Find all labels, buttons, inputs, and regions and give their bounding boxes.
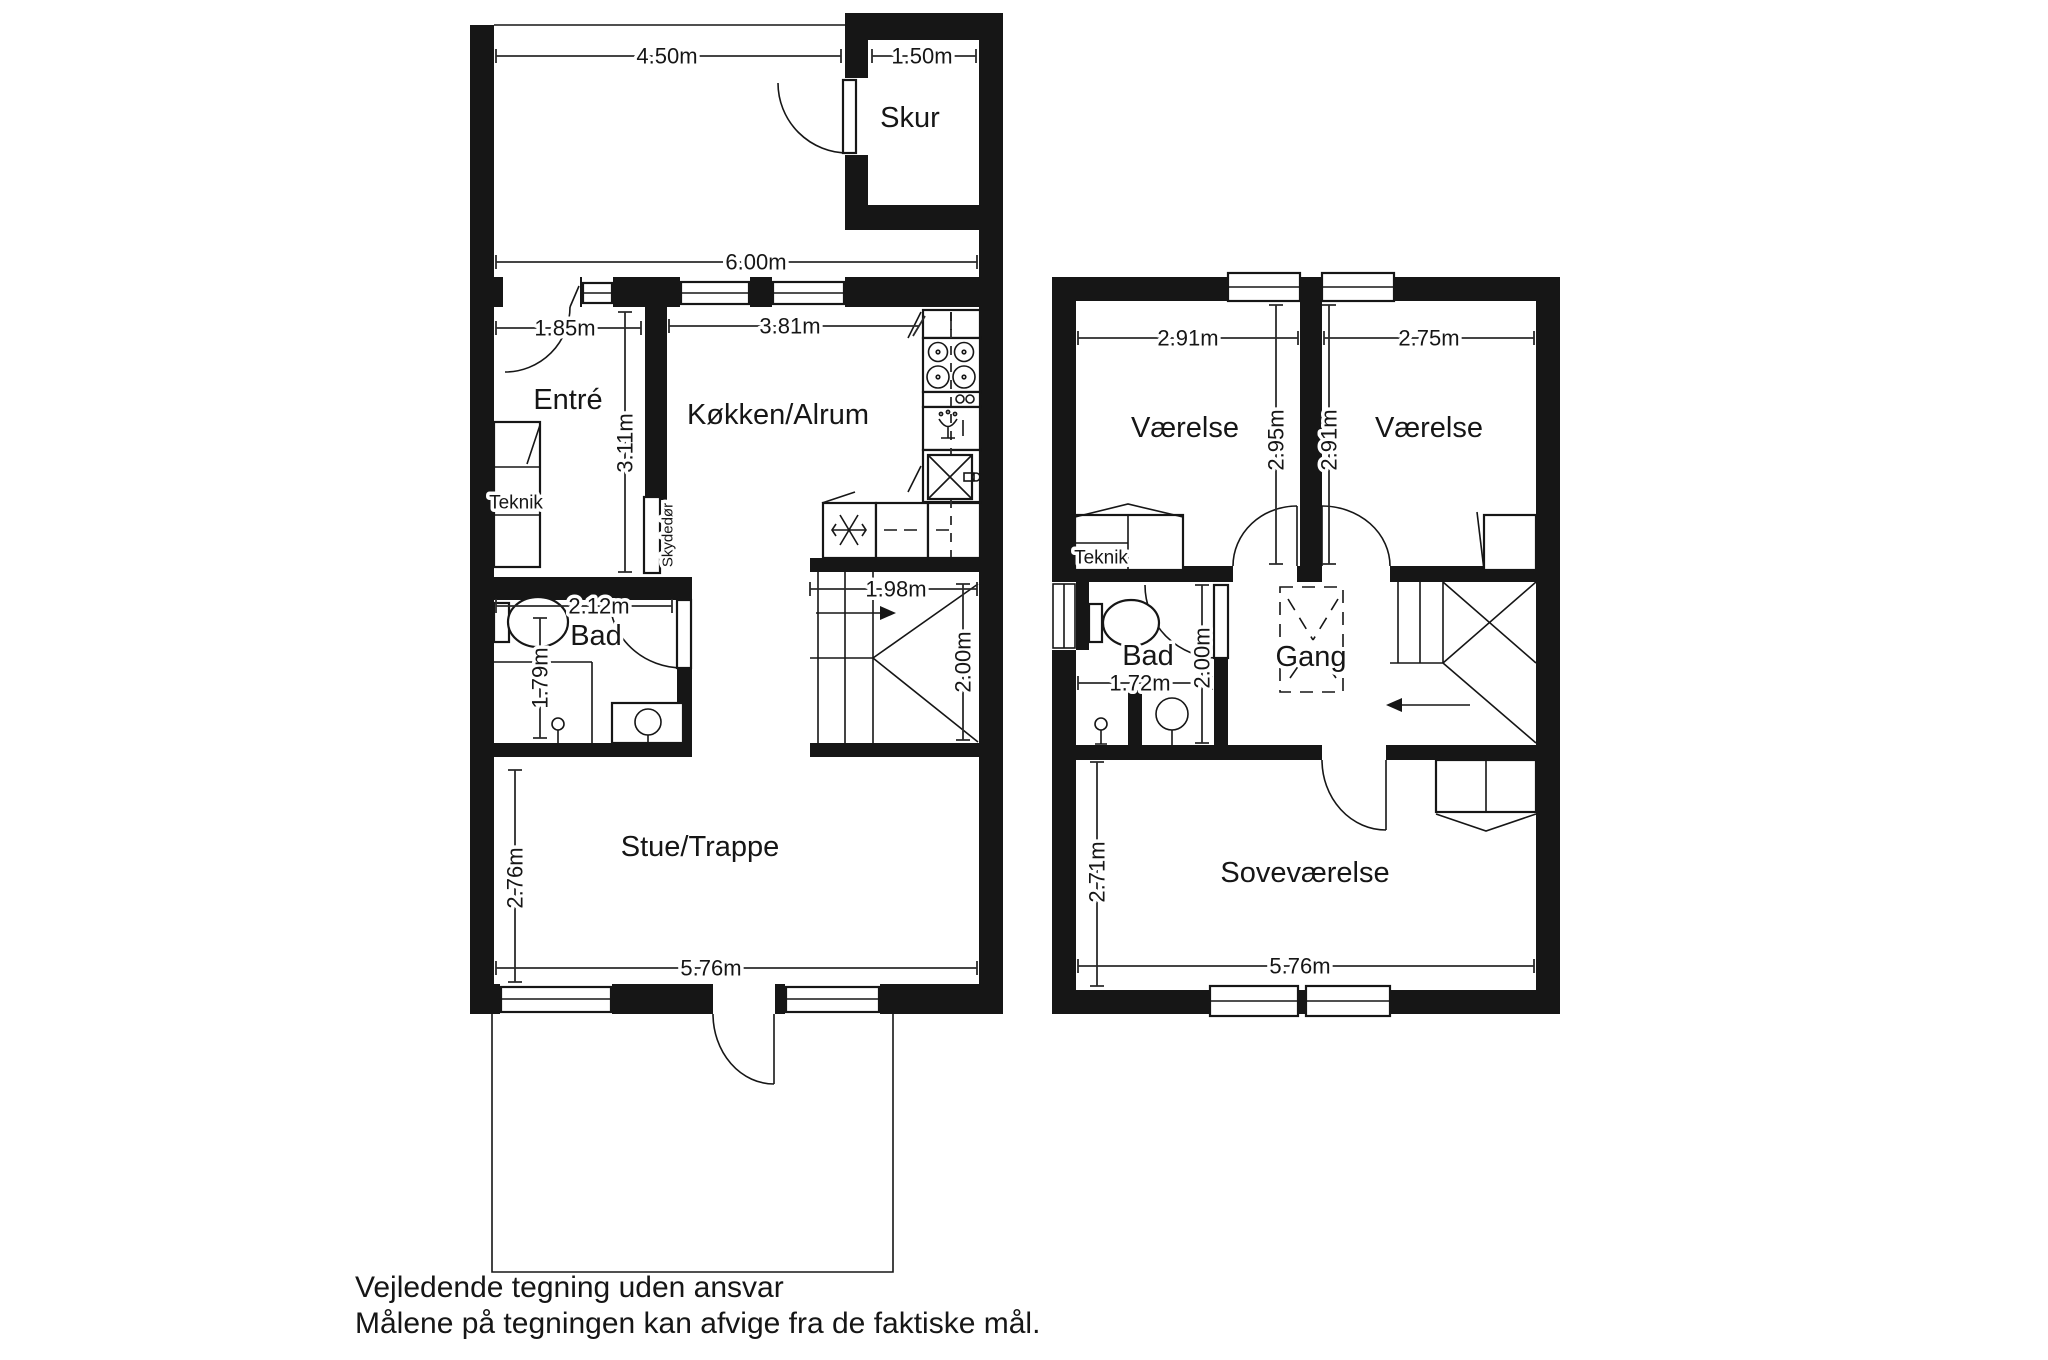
bath-wall: [1214, 658, 1228, 745]
room-label-sovevaerelse: Soveværelse: [1220, 857, 1389, 889]
bath-window: [1052, 582, 1089, 650]
dim-house-width: 6.00m: [725, 250, 786, 275]
sove-window-1: [1210, 986, 1298, 1016]
dim-vaerelse-left-depth: 2.95m: [1264, 409, 1289, 470]
dim-kitchen-width: 3.81m: [759, 314, 820, 339]
sliding-door: [644, 497, 660, 573]
dim-sove-depth: 2.71m: [1085, 841, 1110, 902]
door-arc: [713, 1014, 774, 1084]
door-opening: [1233, 566, 1297, 582]
direction-arrow-icon: [880, 606, 896, 620]
dim-skur-width: 1.50m: [891, 44, 952, 69]
dim-entre-width: 1.85m: [534, 316, 595, 341]
dim-sove-width: 5.76m: [1269, 954, 1330, 979]
door-leaf: [1214, 585, 1228, 658]
dim-bad-width: 2.12m: [568, 594, 629, 619]
dim-vaerelse-right-depth: 2.91m: [1317, 409, 1342, 470]
shower-partition-wall: [1128, 690, 1142, 745]
toilet-icon: [494, 597, 568, 647]
label-skydedor: Skydedør: [660, 503, 677, 567]
kitchen-window-2: [772, 277, 845, 307]
door-opening: [1322, 745, 1386, 760]
dim-stue-width: 5.76m: [680, 956, 741, 981]
entry-door-opening: [503, 277, 580, 307]
room-label-entre: Entré: [533, 384, 602, 416]
skur-door: [778, 78, 868, 155]
room-label-vaerelse-left: Værelse: [1131, 412, 1239, 444]
terrace-outline: [492, 1014, 893, 1272]
dim-vaerelse-right-width: 2.75m: [1398, 326, 1459, 351]
kitchen-window-1: [680, 277, 750, 307]
door-leaf: [843, 80, 856, 153]
living-window-1: [500, 984, 612, 1014]
door-opening: [1322, 566, 1390, 582]
bedroom-window-1: [1228, 273, 1300, 301]
room-label-stue-trappe: Stue/Trappe: [621, 831, 780, 863]
dim-bad-first-width: 1.72m: [1109, 671, 1170, 696]
room-label-bad-ground: Bad: [570, 620, 622, 652]
floor-plan-drawing: Skur 4.50m 1.50m 6.00m 1.85m 3.81m 3.11m…: [0, 0, 2048, 1360]
dishwasher-icon: [923, 407, 980, 450]
sink-basin: [928, 455, 980, 499]
door-leaf: [677, 600, 691, 668]
dim-bad-first-depth: 2.00m: [1190, 627, 1215, 688]
dim-entre-depth: 3.11m: [613, 413, 638, 473]
dim-garden-width: 4.50m: [636, 44, 697, 69]
wardrobe-right-room: [1477, 512, 1536, 570]
living-window-2: [785, 984, 880, 1014]
room-label-kokken-alrum: Køkken/Alrum: [687, 399, 869, 431]
room-label-teknik-first: Teknik: [1074, 548, 1128, 569]
dim-stue-depth: 2.76m: [503, 847, 528, 908]
kitchen-counter: [822, 310, 980, 558]
sink-icon: [612, 703, 683, 750]
room-label-vaerelse-right: Værelse: [1375, 412, 1483, 444]
sove-window-2: [1306, 986, 1390, 1016]
door-arc: [778, 83, 848, 153]
dim-stairs-width: 1.98m: [865, 577, 926, 602]
dim-bad-depth: 1.79m: [528, 647, 553, 708]
dim-vaerelse-left-width: 2.91m: [1157, 326, 1218, 351]
shower-drain-icon: [552, 718, 564, 744]
disclaimer-line-2: Målene på tegningen kan afvige fra de fa…: [355, 1307, 1040, 1340]
room-label-bad-first: Bad: [1122, 640, 1174, 672]
terrace-door: [713, 984, 775, 1084]
room-label-teknik: Teknik: [489, 493, 543, 514]
disclaimer-line-1: Vejledende tegning uden ansvar: [355, 1271, 784, 1304]
entry-sidelight-window: [582, 277, 613, 307]
floor-plan-page: Skur 4.50m 1.50m 6.00m 1.85m 3.81m 3.11m…: [0, 0, 2048, 1360]
ground-floor-plan: Skur 4.50m 1.50m 6.00m 1.85m 3.81m 3.11m…: [470, 13, 1003, 1272]
bedroom-window-2: [1322, 273, 1394, 301]
room-label-skur: Skur: [880, 102, 940, 134]
dim-stairs-depth: 2.00m: [951, 631, 976, 692]
room-label-gang: Gang: [1276, 641, 1347, 673]
first-floor-plan: Værelse Værelse 2.91m 2.75m 2.95m 2.91m …: [1052, 273, 1560, 1016]
